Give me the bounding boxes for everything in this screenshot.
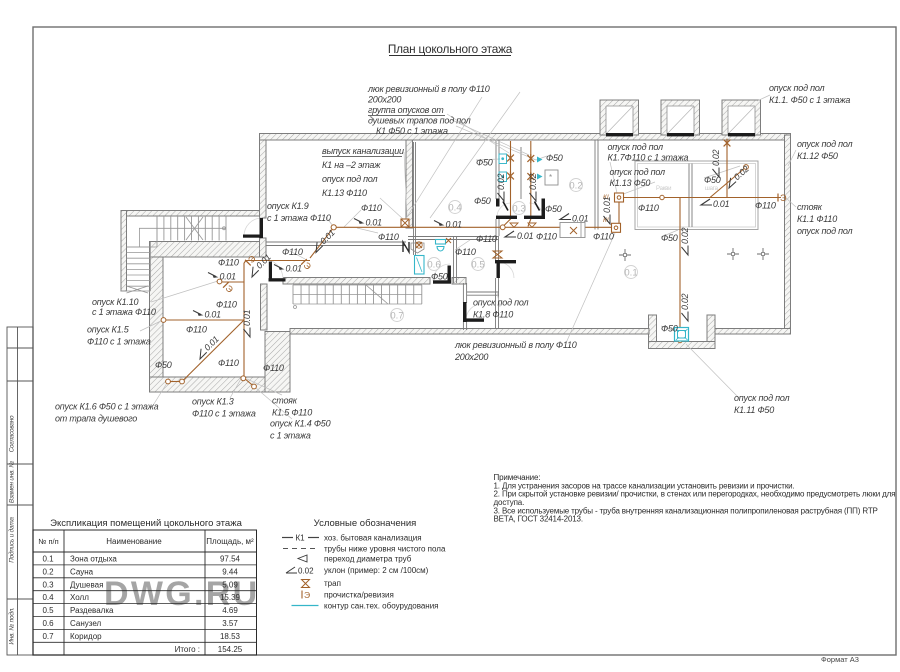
svg-text:Формат А3: Формат А3: [821, 655, 859, 664]
svg-text:с 1 этажа Ф110: с 1 этажа Ф110: [267, 213, 331, 223]
svg-text:К1 на –2 этаж: К1 на –2 этаж: [322, 160, 381, 170]
svg-text:Взамен инв. №: Взамен инв. №: [9, 461, 16, 504]
svg-text:0.01: 0.01: [602, 196, 612, 213]
svg-text:0.01: 0.01: [205, 310, 222, 320]
svg-text:опуск под пол: опуск под пол: [797, 139, 853, 149]
svg-text:с 1 этажа: с 1 этажа: [270, 431, 311, 441]
svg-text:К1: К1: [296, 534, 306, 543]
svg-text:контур сан.тех. обоурудования: контур сан.тех. обоурудования: [324, 602, 439, 611]
svg-text:Ф110: Ф110: [218, 358, 239, 368]
svg-text:трубы ниже уровня чистого пола: трубы ниже уровня чистого пола: [324, 545, 446, 554]
svg-text:Ф110: Ф110: [218, 258, 239, 268]
svg-text:прочистка/ревизия: прочистка/ревизия: [324, 591, 394, 600]
svg-text:Наименование: Наименование: [106, 537, 162, 546]
svg-text:5.09: 5.09: [222, 580, 238, 589]
svg-text:К1.1. Ф50 с 1 этажа: К1.1. Ф50 с 1 этажа: [769, 95, 850, 105]
svg-text:опуск под пол: опуск под пол: [734, 393, 790, 403]
svg-text:Ф110: Ф110: [476, 234, 497, 244]
svg-text:от трапа душевого: от трапа душевого: [55, 414, 137, 424]
svg-text:люк ревизионный в полу Ф110: люк ревизионный в полу Ф110: [454, 340, 577, 350]
svg-text:0.4: 0.4: [448, 203, 461, 214]
svg-text:КІ: КІ: [603, 217, 609, 224]
svg-text:стояк: стояк: [272, 396, 298, 406]
svg-text:опуск под пол: опуск под пол: [769, 83, 825, 93]
svg-text:0.3: 0.3: [512, 204, 525, 215]
svg-text:0.6: 0.6: [427, 260, 440, 271]
svg-text:Раздевалка: Раздевалка: [70, 606, 114, 615]
svg-text:опуск под пол: опуск под пол: [610, 167, 666, 177]
svg-text:0.01: 0.01: [517, 231, 534, 241]
svg-text:люк ревизионный в полу Ф110: люк ревизионный в полу Ф110: [367, 84, 490, 94]
svg-text:уклон (пример: 2 см /100см): уклон (пример: 2 см /100см): [324, 566, 429, 575]
svg-text:Санузел: Санузел: [70, 619, 101, 628]
svg-text:0.7: 0.7: [42, 632, 54, 641]
svg-text:0.5: 0.5: [471, 260, 484, 271]
svg-text:опуск под пол: опуск под пол: [473, 298, 529, 308]
svg-text:стояк: стояк: [797, 202, 823, 212]
svg-text:Ф50: Ф50: [545, 204, 562, 214]
svg-text:200х200: 200х200: [367, 95, 401, 105]
svg-text:0.01: 0.01: [242, 309, 252, 326]
svg-text:опуск К1.4 Ф50: опуск К1.4 Ф50: [270, 419, 331, 429]
svg-text:хоз. бытовая канализация: хоз. бытовая канализация: [324, 534, 422, 543]
svg-text:К1.11 Ф50: К1.11 Ф50: [734, 405, 774, 415]
svg-text:0.01: 0.01: [572, 214, 589, 224]
svg-text:0.3: 0.3: [42, 580, 54, 589]
svg-text:Ф110: Ф110: [755, 201, 776, 211]
svg-text:Ф110: Ф110: [455, 247, 476, 257]
svg-text:3.57: 3.57: [222, 619, 238, 628]
svg-text:Ф50: Ф50: [474, 196, 491, 206]
svg-text:опуск под пол: опуск под пол: [322, 174, 378, 184]
svg-text:0.01: 0.01: [446, 220, 463, 230]
svg-text:К1.1 Ф110: К1.1 Ф110: [797, 214, 837, 224]
svg-text:0.1: 0.1: [42, 555, 54, 564]
svg-text:0.02: 0.02: [680, 293, 690, 310]
svg-text:0.02: 0.02: [528, 173, 538, 190]
svg-text:Подпись и дата: Подпись и дата: [8, 517, 16, 563]
svg-text:Площадь, м²: Площадь, м²: [206, 537, 254, 546]
svg-text:9.44: 9.44: [222, 567, 238, 576]
svg-text:К1.8 Ф110: К1.8 Ф110: [473, 310, 513, 320]
svg-text:К1.5 Ф110: К1.5 Ф110: [272, 408, 312, 418]
svg-text:0.2: 0.2: [569, 181, 582, 192]
svg-text:Э: Э: [304, 590, 310, 600]
svg-text:опуск К1.10: опуск К1.10: [92, 297, 139, 307]
svg-text:Ф50: Ф50: [546, 153, 563, 163]
svg-text:Ф110: Ф110: [638, 203, 659, 213]
svg-text:Ф50: Ф50: [155, 360, 172, 370]
svg-text:0.02: 0.02: [496, 173, 506, 190]
svg-text:с 1 этажа Ф110: с 1 этажа Ф110: [92, 307, 156, 317]
svg-text:Холл: Холл: [70, 593, 89, 602]
svg-text:Итого :: Итого :: [175, 645, 200, 654]
svg-text:Ф50: Ф50: [661, 324, 678, 334]
svg-text:0.01: 0.01: [286, 264, 303, 274]
svg-text:Ф110 с 1 этажа: Ф110 с 1 этажа: [87, 337, 151, 347]
svg-text:опуск К1.9: опуск К1.9: [267, 201, 309, 211]
svg-text:18.53: 18.53: [220, 632, 241, 641]
svg-text:Ф110: Ф110: [186, 325, 207, 335]
svg-text:97.54: 97.54: [220, 555, 241, 564]
svg-text:2. При скрытой установке ревиз: 2. При скрытой установке ревизии/ прочис…: [494, 490, 896, 499]
svg-text:*: *: [549, 173, 552, 182]
svg-text:0.01: 0.01: [366, 218, 383, 228]
svg-text:154.25: 154.25: [218, 645, 243, 654]
svg-text:0.01: 0.01: [220, 272, 237, 282]
svg-text:0.5: 0.5: [42, 606, 54, 615]
svg-text:Ф50: Ф50: [431, 272, 448, 282]
svg-text:Инв. № подл.: Инв. № подл.: [8, 607, 16, 644]
svg-text:шага: шага: [705, 186, 719, 192]
svg-text:Коридор: Коридор: [70, 632, 102, 641]
svg-text:0.1: 0.1: [624, 268, 637, 279]
svg-text:Ф110: Ф110: [536, 232, 557, 242]
svg-text:Зона отдыха: Зона отдыха: [70, 555, 117, 564]
svg-text:Ф110: Ф110: [593, 232, 614, 242]
svg-text:Ф50: Ф50: [476, 158, 493, 168]
svg-text:ВЕТА, ГОСТ 32414-2013.: ВЕТА, ГОСТ 32414-2013.: [494, 515, 583, 524]
svg-text:трап: трап: [324, 579, 341, 588]
svg-text:15.39: 15.39: [220, 593, 241, 602]
svg-text:№ п/п: № п/п: [38, 537, 58, 546]
svg-text:опуск под пол: опуск под пол: [608, 142, 664, 152]
svg-text:К1.13 Ф50: К1.13 Ф50: [610, 178, 651, 188]
svg-text:К1.12 Ф50: К1.12 Ф50: [797, 151, 838, 161]
svg-text:Ф110 с 1 этажа: Ф110 с 1 этажа: [192, 409, 256, 419]
svg-text:опуск К1.6 Ф50 с 1 этажа: опуск К1.6 Ф50 с 1 этажа: [55, 402, 159, 412]
svg-text:группа опусков от: группа опусков от: [368, 105, 444, 115]
svg-text:200х200: 200х200: [454, 352, 488, 362]
svg-text:0.2: 0.2: [42, 567, 54, 576]
svg-text:Ф110: Ф110: [378, 232, 399, 242]
svg-text:0.02: 0.02: [711, 149, 721, 166]
svg-text:опуск К1.3: опуск К1.3: [192, 397, 234, 407]
svg-text:0.6: 0.6: [42, 619, 54, 628]
svg-text:Ф110: Ф110: [216, 300, 237, 310]
svg-text:0.01: 0.01: [713, 199, 730, 209]
svg-text:опуск под пол: опуск под пол: [797, 226, 853, 236]
svg-text:0.4: 0.4: [42, 593, 54, 602]
svg-text:Душевая: Душевая: [70, 580, 103, 589]
svg-text:Э: Э: [780, 193, 787, 203]
svg-text:Согласовано: Согласовано: [9, 415, 16, 452]
svg-text:0.02: 0.02: [680, 227, 690, 244]
svg-text:выпуск канализации: выпуск канализации: [322, 146, 404, 156]
svg-text:Ракви: Ракви: [656, 186, 671, 192]
svg-text:душевых трапов под пол: душевых трапов под пол: [368, 116, 471, 126]
svg-text:Экспликация помещений цокольно: Экспликация помещений цокольного этажа: [50, 518, 242, 529]
svg-text:К1.13 Ф110: К1.13 Ф110: [322, 188, 367, 198]
svg-text:Ф110: Ф110: [361, 203, 382, 213]
svg-text:План цокольного этажа: План цокольного этажа: [388, 42, 513, 56]
svg-text:Ф110: Ф110: [263, 363, 284, 373]
svg-text:опуск К1.5: опуск К1.5: [87, 325, 130, 335]
svg-text:Ф50: Ф50: [661, 233, 678, 243]
svg-text:Условные обозначения: Условные обозначения: [314, 518, 417, 529]
svg-text:переход диаметра труб: переход диаметра труб: [324, 555, 412, 564]
svg-text:К1.7Ф110 с 1 этажа: К1.7Ф110 с 1 этажа: [608, 153, 689, 163]
svg-text:0.02: 0.02: [298, 567, 314, 576]
svg-text:Сауна: Сауна: [70, 567, 94, 576]
svg-text:0.7: 0.7: [390, 311, 403, 322]
svg-text:К1 Ф50 с 1 этажа: К1 Ф50 с 1 этажа: [376, 126, 448, 136]
svg-text:Ф110: Ф110: [282, 247, 303, 257]
svg-text:4.69: 4.69: [222, 606, 238, 615]
